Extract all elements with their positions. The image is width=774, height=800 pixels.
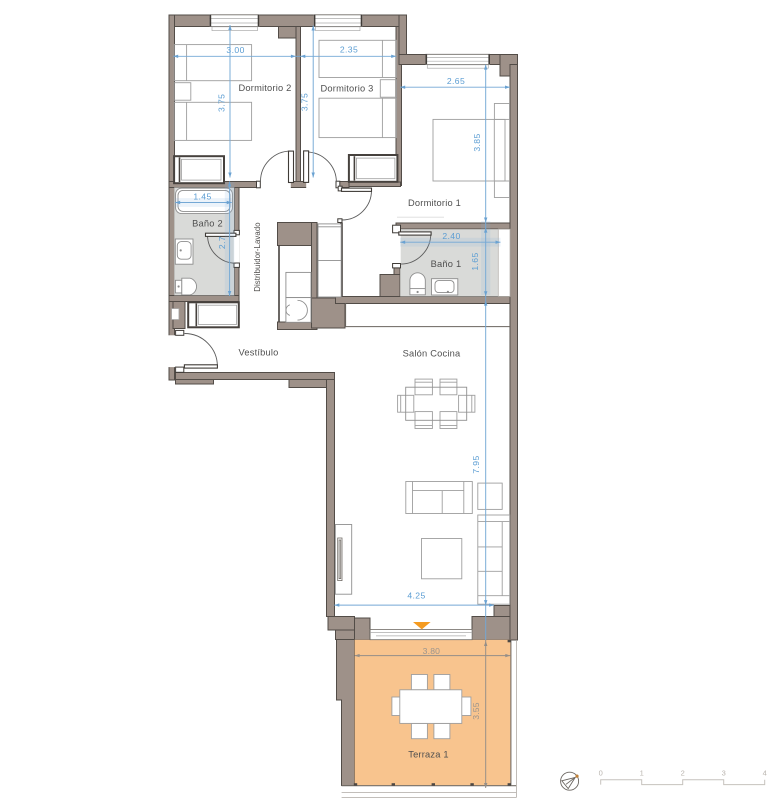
svg-text:Terraza 1: Terraza 1	[408, 750, 449, 760]
svg-text:Baño 1: Baño 1	[431, 259, 462, 269]
svg-text:Dormitorio 3: Dormitorio 3	[320, 84, 373, 94]
svg-text:2.65: 2.65	[447, 76, 465, 86]
svg-text:2.35: 2.35	[340, 45, 358, 55]
svg-text:3.75: 3.75	[217, 94, 227, 112]
svg-text:Baño 2: Baño 2	[192, 218, 223, 228]
svg-text:7.95: 7.95	[471, 455, 481, 473]
svg-text:3.00: 3.00	[226, 45, 244, 55]
svg-text:Dormitorio 1: Dormitorio 1	[408, 198, 461, 208]
svg-text:2.7: 2.7	[217, 236, 227, 249]
svg-text:3.75: 3.75	[299, 93, 309, 111]
svg-text:4: 4	[763, 768, 767, 777]
svg-text:0: 0	[599, 768, 603, 777]
svg-text:4.25: 4.25	[407, 591, 425, 601]
svg-text:1.65: 1.65	[470, 252, 480, 270]
svg-text:2: 2	[681, 768, 685, 777]
svg-text:1.45: 1.45	[193, 192, 211, 202]
svg-text:Salón Cocina: Salón Cocina	[403, 348, 461, 358]
svg-text:3.55: 3.55	[471, 702, 481, 720]
svg-text:3.80: 3.80	[423, 646, 441, 656]
svg-text:2.40: 2.40	[442, 231, 460, 241]
svg-text:1: 1	[640, 768, 644, 777]
svg-text:Vestíbulo: Vestíbulo	[238, 347, 278, 357]
svg-text:3.85: 3.85	[472, 133, 482, 151]
svg-text:Dormitorio 2: Dormitorio 2	[238, 83, 291, 93]
svg-text:Distribuidor-Lavado: Distribuidor-Lavado	[253, 222, 262, 292]
svg-text:3: 3	[722, 768, 726, 777]
